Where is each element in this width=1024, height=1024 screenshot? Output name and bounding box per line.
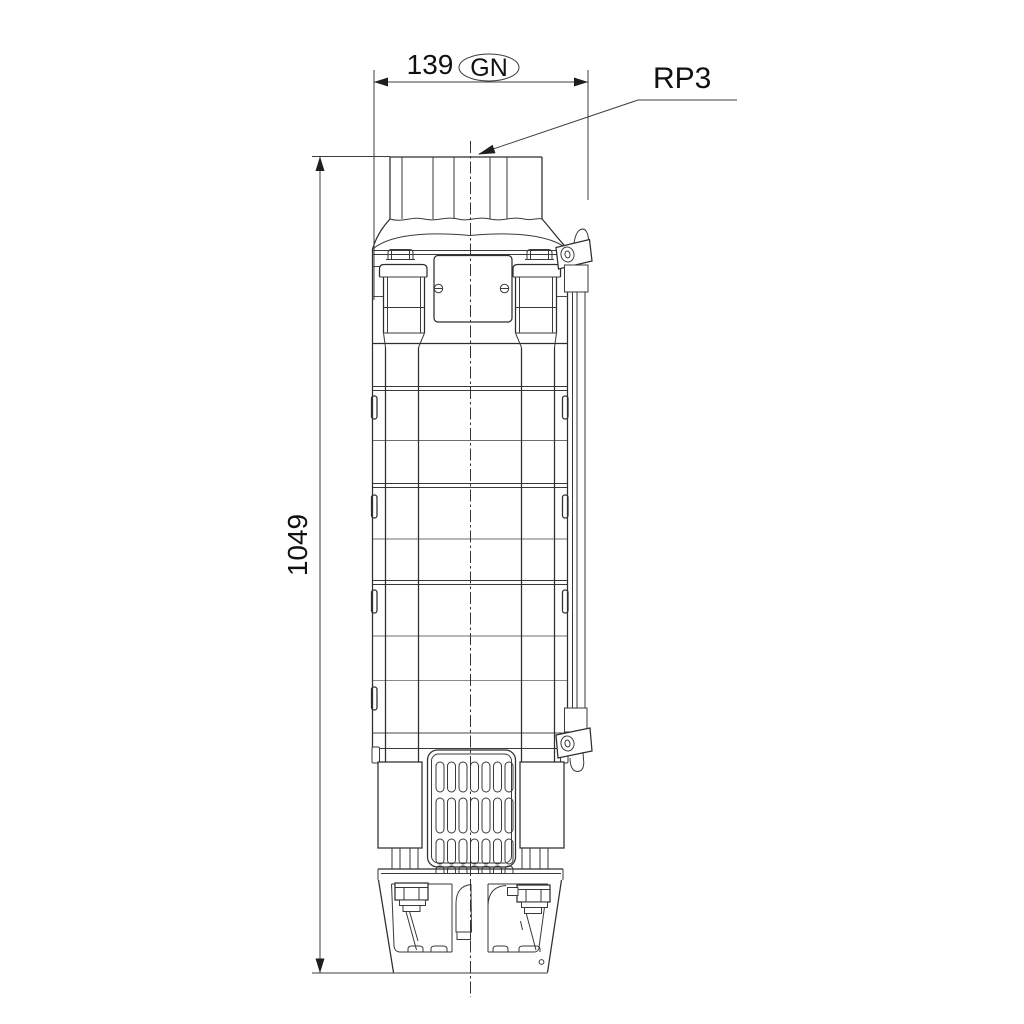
pump-dimension-drawing: 139 GN 1049 RP3: [0, 0, 1024, 1024]
drawing-canvas: 139 GN 1049 RP3: [0, 0, 1024, 1024]
inlet-screen: [428, 750, 516, 874]
connection-label: RP3: [653, 62, 711, 95]
width-dim-label: 139: [407, 49, 454, 80]
name-plate: [434, 256, 512, 323]
hex-nut: [395, 883, 428, 900]
background: [0, 0, 1024, 1024]
height-dim-label: 1049: [282, 514, 313, 576]
port-code-label: GN: [470, 54, 508, 82]
hex-nut: [517, 885, 550, 902]
